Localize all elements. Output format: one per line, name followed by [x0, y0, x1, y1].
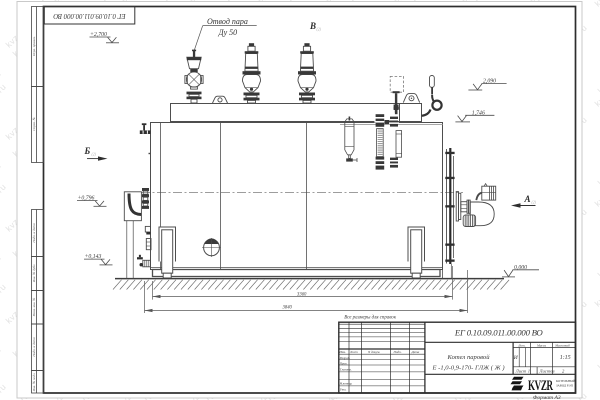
svg-text:Справ. №: Справ. №	[32, 116, 36, 131]
svg-text:Изм.: Изм.	[338, 350, 346, 354]
svg-text:Масса: Масса	[536, 343, 546, 347]
svg-text:Инв. № дубл.: Инв. № дубл.	[32, 264, 36, 284]
svg-text:Т.контр.: Т.контр.	[340, 367, 352, 371]
svg-text:3360: 3360	[297, 293, 307, 298]
svg-text:Листов: Листов	[538, 369, 554, 374]
svg-text:Подп.: Подп.	[393, 350, 402, 354]
svg-text:Н.контр.: Н.контр.	[339, 382, 353, 386]
svg-text:1:15: 1:15	[560, 355, 571, 361]
svg-text:(2): (2)	[92, 152, 97, 156]
svg-text:N докум.: N докум.	[367, 350, 380, 354]
svg-text:Котел паровой: Котел паровой	[446, 354, 490, 361]
svg-text:Взам. инв. №: Взам. инв. №	[32, 297, 36, 316]
svg-text:KVZR: KVZR	[528, 377, 553, 394]
svg-text:Пров.: Пров.	[339, 361, 348, 365]
svg-text:Все размеры для справок: Все размеры для справок	[344, 315, 397, 320]
svg-text:Е -1,0-0,9-170- ГЛЖ ( Ж ): Е -1,0-0,9-170- ГЛЖ ( Ж )	[431, 365, 504, 372]
svg-text:(2): (2)	[532, 200, 537, 204]
svg-text:В: В	[309, 21, 316, 31]
svg-text:Отвод пара: Отвод пара	[207, 17, 248, 26]
svg-text:Разраб.: Разраб.	[339, 356, 351, 360]
svg-text:Перв. примен.: Перв. примен.	[32, 36, 36, 57]
svg-text:Б: Б	[84, 146, 91, 156]
svg-text:Формат А3: Формат А3	[533, 395, 561, 400]
svg-text:Инв. № подл.: Инв. № подл.	[32, 372, 36, 392]
svg-text:3840: 3840	[283, 306, 293, 311]
svg-text:1: 1	[528, 369, 530, 374]
svg-text:Подп. и дата: Подп. и дата	[32, 223, 36, 244]
svg-text:Ду 50: Ду 50	[218, 28, 238, 37]
svg-text:Утв.: Утв.	[340, 388, 347, 392]
svg-text:КОТЕЛЬНЫЙ: КОТЕЛЬНЫЙ	[556, 378, 576, 383]
svg-text:Лит.: Лит.	[517, 343, 525, 347]
svg-text:ЕГ 0.10.09.011.00.000 ВО: ЕГ 0.10.09.011.00.000 ВО	[454, 327, 544, 337]
svg-text:Лист: Лист	[349, 350, 358, 354]
svg-text:Лист: Лист	[515, 369, 527, 374]
svg-text:(2): (2)	[317, 27, 322, 31]
svg-text:Масштаб: Масштаб	[554, 343, 570, 347]
svg-text:ЕГ 0.10.09.011.00.000 ВО: ЕГ 0.10.09.011.00.000 ВО	[53, 12, 126, 19]
svg-text:Подп. и дата: Подп. и дата	[32, 337, 36, 358]
svg-text:А: А	[524, 194, 531, 204]
svg-text:Дата: Дата	[411, 350, 420, 354]
svg-text:ЗАВОД РЭП: ЗАВОД РЭП	[556, 384, 574, 388]
